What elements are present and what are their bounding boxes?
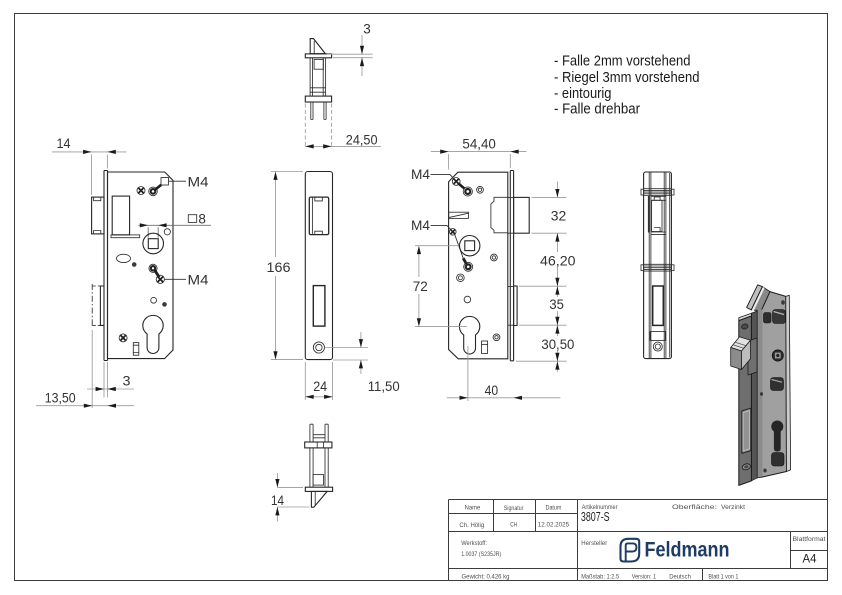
svg-text:M4: M4 <box>411 167 430 182</box>
svg-text:M4: M4 <box>188 272 210 287</box>
svg-text:- eintourig: - eintourig <box>554 85 612 102</box>
svg-text:Datum: Datum <box>546 505 562 512</box>
svg-text:166: 166 <box>267 260 291 275</box>
svg-text:- Falle 2mm vorstehend: - Falle 2mm vorstehend <box>554 53 691 70</box>
svg-text:54,40: 54,40 <box>462 136 496 151</box>
svg-text:Blatt 1 von 1: Blatt 1 von 1 <box>708 574 738 581</box>
svg-text:Name: Name <box>465 505 481 512</box>
svg-text:M4: M4 <box>411 218 430 233</box>
svg-text:1.0037 (S235JR): 1.0037 (S235JR) <box>461 551 501 558</box>
svg-text:3: 3 <box>363 22 371 37</box>
svg-text:32: 32 <box>551 209 567 224</box>
svg-text:Deutsch: Deutsch <box>669 574 691 581</box>
svg-text:11,50: 11,50 <box>368 379 400 394</box>
svg-text:Gewicht: 0.426 kg: Gewicht: 0.426 kg <box>462 574 510 581</box>
svg-text:14: 14 <box>271 493 284 508</box>
svg-text:30,50: 30,50 <box>541 337 574 352</box>
svg-text:72: 72 <box>413 279 428 294</box>
svg-text:46,20: 46,20 <box>540 253 576 268</box>
svg-text:Maßstab: 1:2.5: Maßstab: 1:2.5 <box>581 574 619 581</box>
svg-text:CH: CH <box>510 522 517 529</box>
svg-text:M4: M4 <box>188 175 210 190</box>
svg-text:A4: A4 <box>803 554 818 566</box>
svg-text:Feldmann: Feldmann <box>645 539 730 562</box>
svg-text:13,50: 13,50 <box>45 391 76 406</box>
svg-text:- Falle drehbar: - Falle drehbar <box>554 101 640 118</box>
svg-text:3807-S: 3807-S <box>581 509 610 524</box>
svg-text:12.02.2025: 12.02.2025 <box>538 522 569 529</box>
svg-text:Oberfläche:: Oberfläche: <box>672 504 717 511</box>
svg-text:- Riegel 3mm vorstehend: - Riegel 3mm vorstehend <box>554 69 700 86</box>
svg-text:Verzinkt: Verzinkt <box>721 504 745 511</box>
svg-text:8: 8 <box>198 211 206 226</box>
svg-text:24: 24 <box>313 379 327 394</box>
svg-text:40: 40 <box>485 383 499 398</box>
svg-text:Ch. Hölig: Ch. Hölig <box>459 522 484 529</box>
svg-text:3: 3 <box>123 373 131 388</box>
svg-text:Hersteller: Hersteller <box>581 540 608 547</box>
svg-text:24,50: 24,50 <box>346 133 378 148</box>
svg-text:Version: 1: Version: 1 <box>632 574 656 581</box>
svg-text:Blattformat: Blattformat <box>793 536 826 543</box>
svg-text:14: 14 <box>57 136 71 151</box>
svg-text:Signatur: Signatur <box>504 505 524 512</box>
svg-text:35: 35 <box>549 297 564 312</box>
svg-text:Werkstoff:: Werkstoff: <box>461 540 487 547</box>
